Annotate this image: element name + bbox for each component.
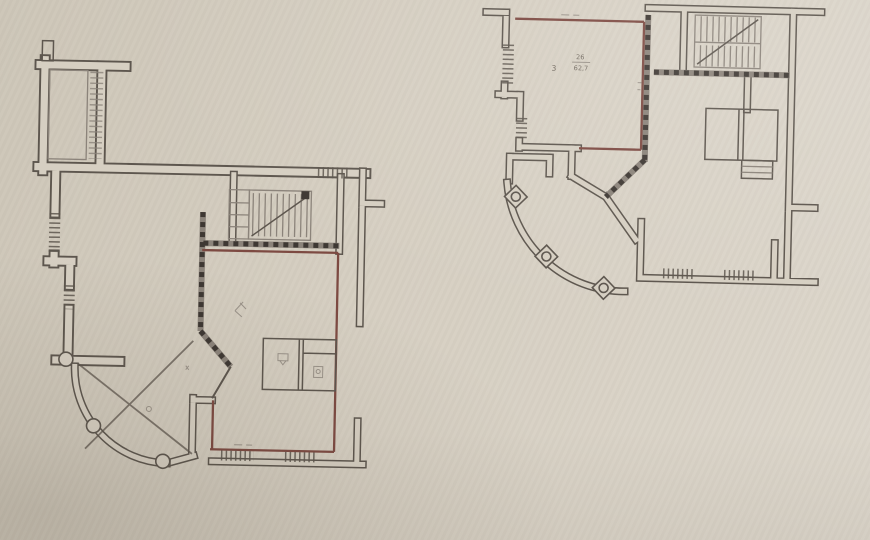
window [663,273,693,274]
window [54,213,55,255]
window [724,275,754,276]
room-index-label: 3 [551,64,556,73]
shaft [48,70,97,160]
window [221,455,254,456]
bay-columns [502,185,617,299]
room-number-label: 26 [576,53,584,61]
window [508,45,509,85]
column [592,277,615,300]
floor-plans-photo: 26 62,7 3 [0,0,870,540]
diagonal-wall [212,366,231,398]
staircase [228,190,311,241]
floor-plan-right: 26 62,7 3 [479,4,821,304]
demolition-walls [199,212,340,401]
column [59,352,73,366]
plans-canvas: 26 62,7 3 [0,0,870,540]
new-wall-outline-red [512,19,644,150]
sink-icon [278,354,288,361]
floor-plan-left [32,41,385,473]
room-area-label: 62,7 [574,64,589,72]
stair-post [301,191,309,199]
window [285,457,317,458]
pencil-annotations [559,15,643,90]
toilet-icon [314,366,323,377]
room-label: 26 62,7 3 [551,53,590,74]
column [156,454,170,468]
closet-unit [704,108,778,179]
column [86,419,100,433]
bathroom-unit [262,338,336,391]
staircase [694,15,761,69]
bay-window-arc [73,366,169,463]
